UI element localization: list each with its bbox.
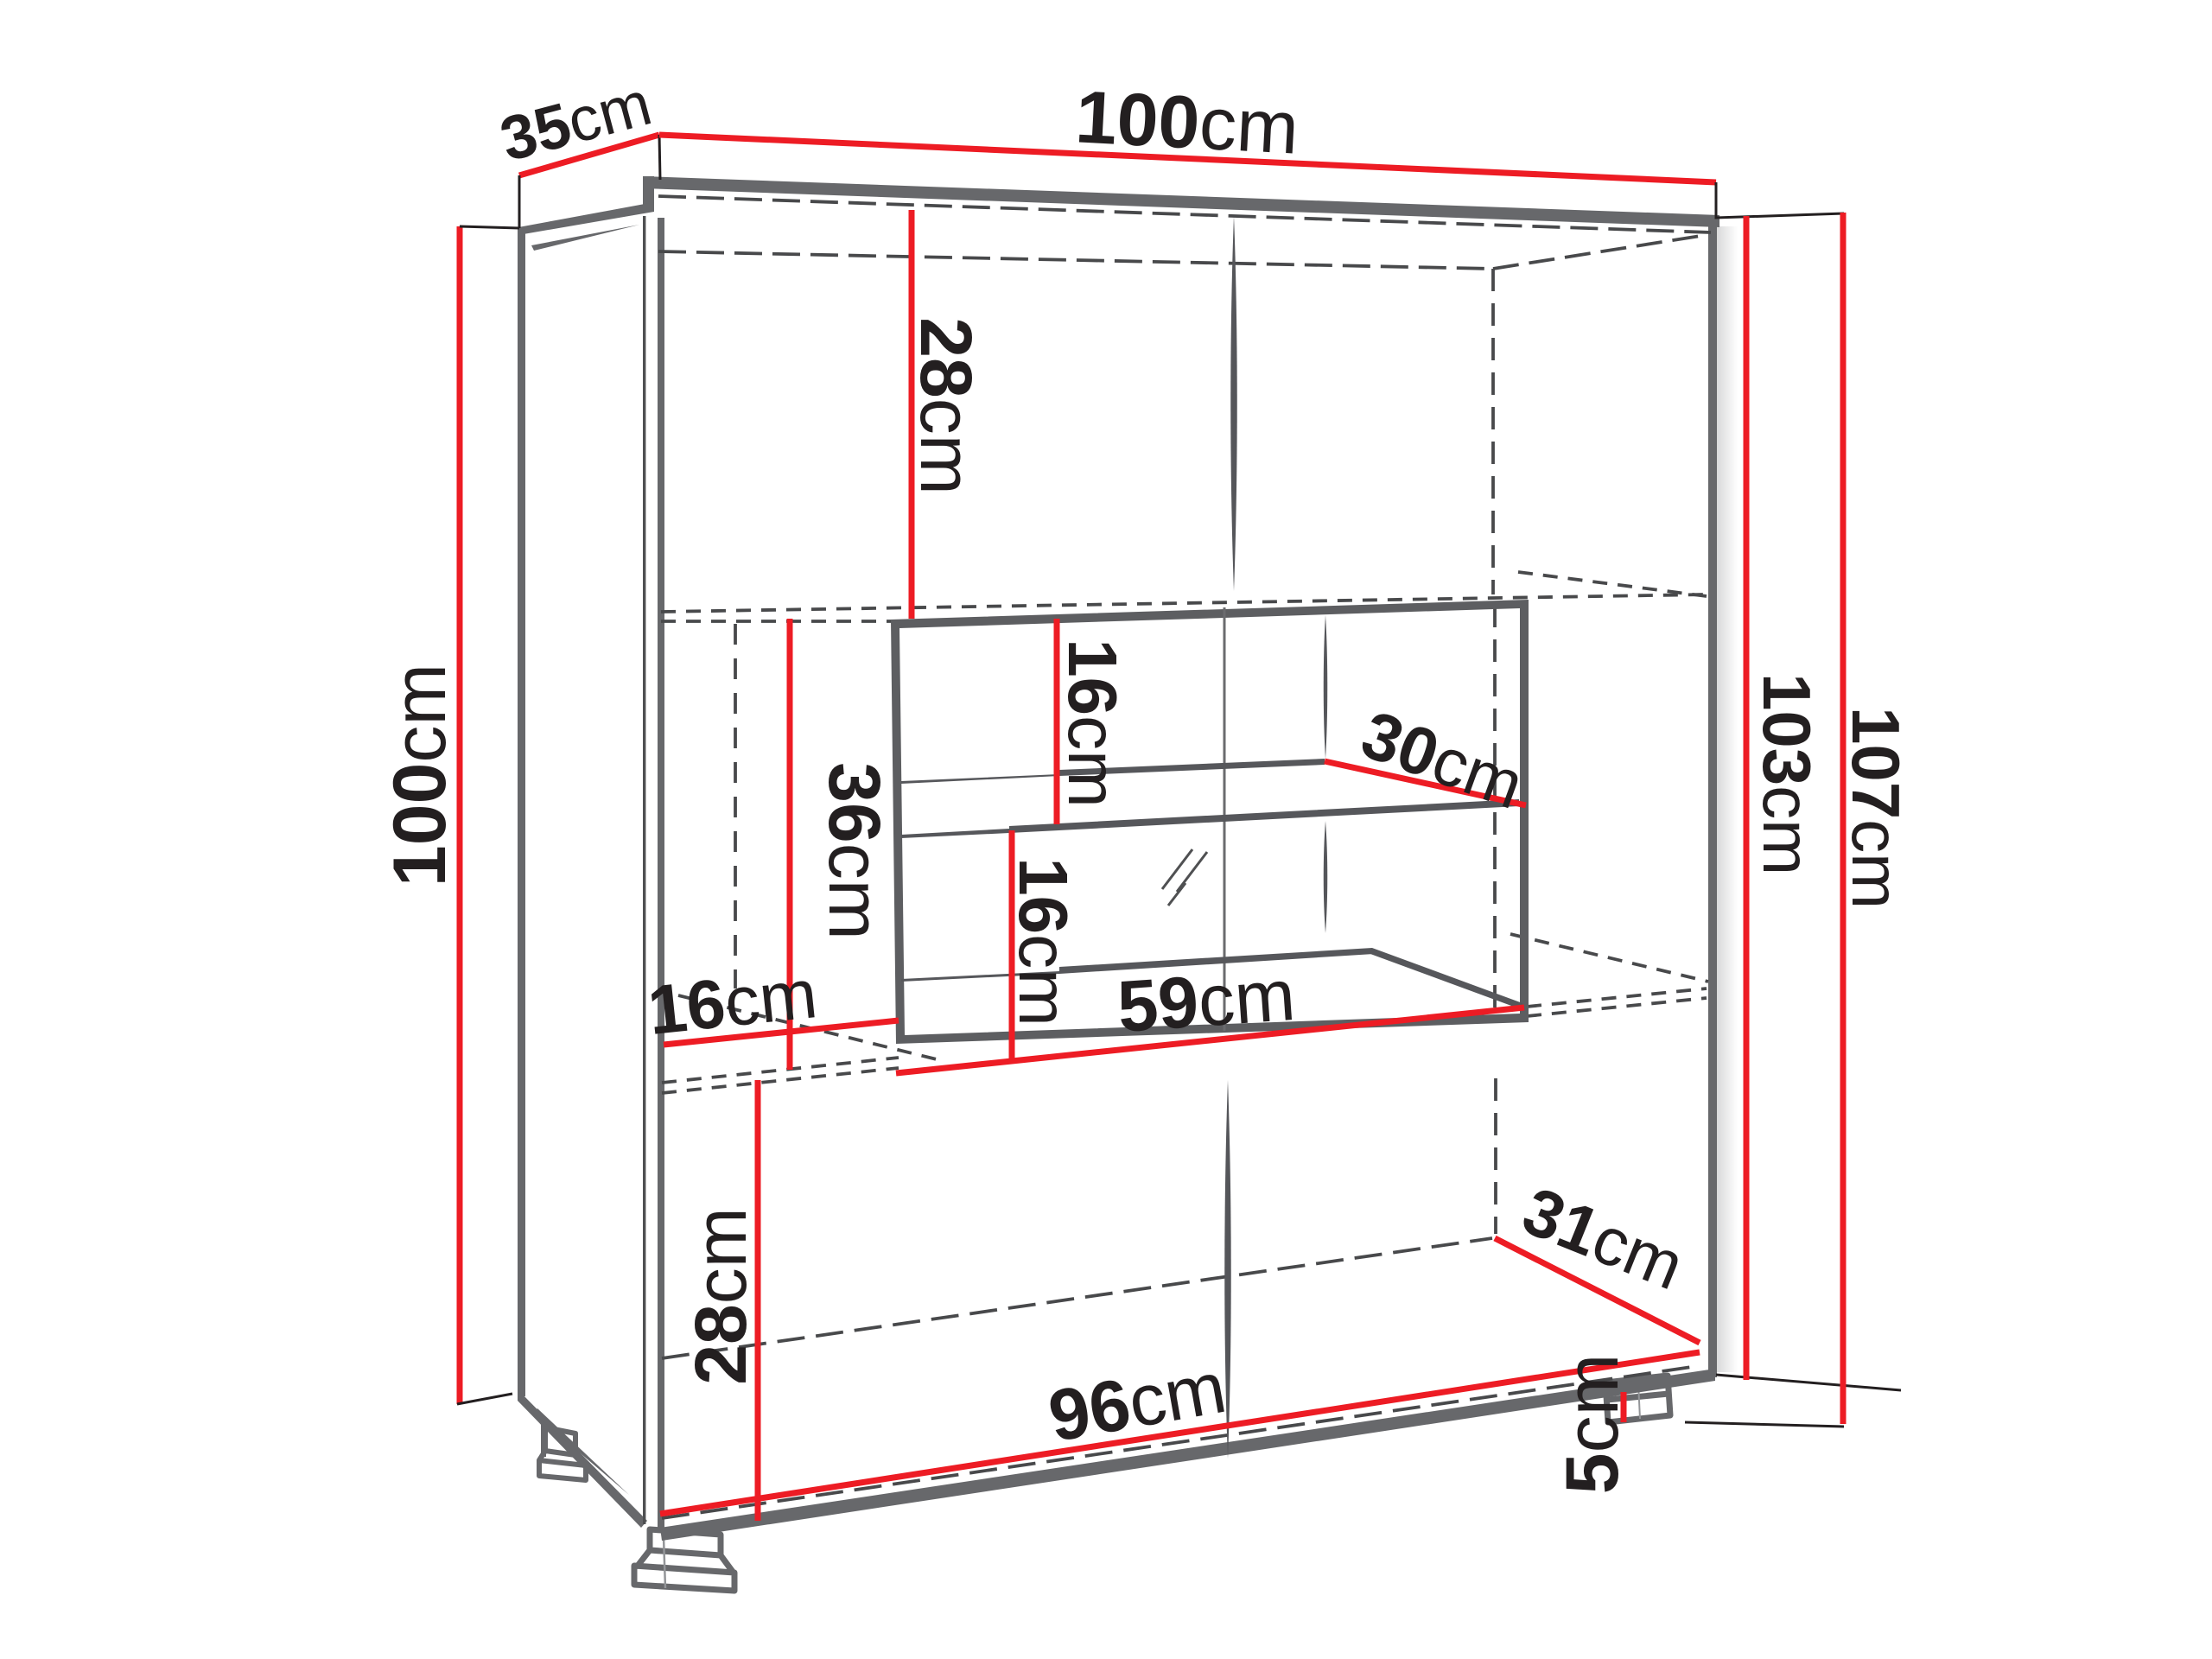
svg-text:107cm: 107cm <box>1838 707 1914 909</box>
svg-text:28cm: 28cm <box>680 1207 761 1384</box>
svg-text:103cm: 103cm <box>1749 673 1825 875</box>
svg-text:100cm: 100cm <box>1073 75 1300 169</box>
svg-text:100cm: 100cm <box>378 664 461 887</box>
svg-text:16cm: 16cm <box>1005 857 1082 1027</box>
svg-text:16cm: 16cm <box>1054 639 1131 808</box>
svg-text:59cm: 59cm <box>1115 954 1297 1047</box>
svg-text:28cm: 28cm <box>906 317 987 494</box>
svg-text:36cm: 36cm <box>814 762 895 939</box>
svg-text:5cm: 5cm <box>1551 1354 1634 1494</box>
